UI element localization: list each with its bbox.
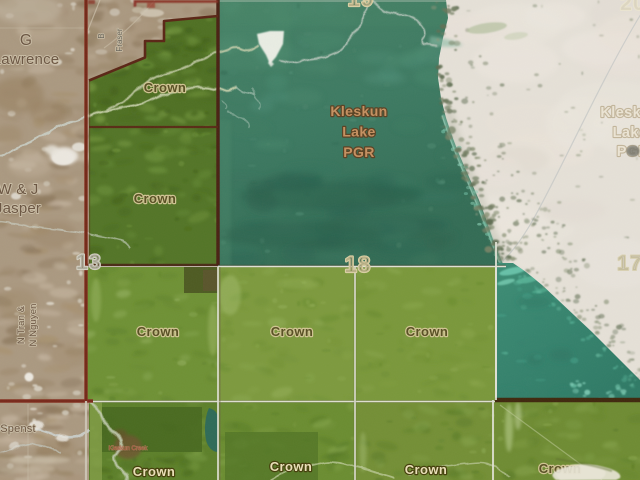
svg-text:Fraser: Fraser xyxy=(115,28,124,51)
svg-text:17: 17 xyxy=(617,252,640,275)
svg-text:Crown: Crown xyxy=(270,459,312,474)
svg-text:N Nguyen: N Nguyen xyxy=(28,303,39,346)
svg-text:Crown: Crown xyxy=(137,324,179,339)
svg-text:Spenst: Spenst xyxy=(0,423,35,435)
svg-text:Lake: Lake xyxy=(613,125,640,141)
svg-text:Kleskun Creek: Kleskun Creek xyxy=(108,446,148,452)
svg-text:Lawrence: Lawrence xyxy=(0,51,59,68)
svg-text:N Tran &: N Tran & xyxy=(16,305,27,344)
svg-text:20: 20 xyxy=(620,0,640,15)
svg-text:18: 18 xyxy=(345,252,372,277)
svg-text:Crown: Crown xyxy=(271,324,313,339)
svg-text:Crown: Crown xyxy=(134,191,176,206)
svg-text:Kleskun: Kleskun xyxy=(600,105,640,121)
svg-text:19: 19 xyxy=(348,0,375,11)
svg-text:B: B xyxy=(97,33,106,38)
svg-text:G: G xyxy=(20,32,32,49)
svg-text:W & J: W & J xyxy=(0,181,39,198)
svg-text:Jasper: Jasper xyxy=(0,200,41,217)
svg-text:Crown: Crown xyxy=(133,464,175,479)
svg-text:Kleskun: Kleskun xyxy=(330,103,387,119)
svg-text:Crown: Crown xyxy=(406,324,448,339)
svg-text:PGR: PGR xyxy=(343,144,375,160)
svg-text:Crown: Crown xyxy=(144,80,186,95)
svg-text:13: 13 xyxy=(76,251,102,274)
svg-text:Crown: Crown xyxy=(405,462,447,477)
svg-text:Lake: Lake xyxy=(342,124,376,140)
